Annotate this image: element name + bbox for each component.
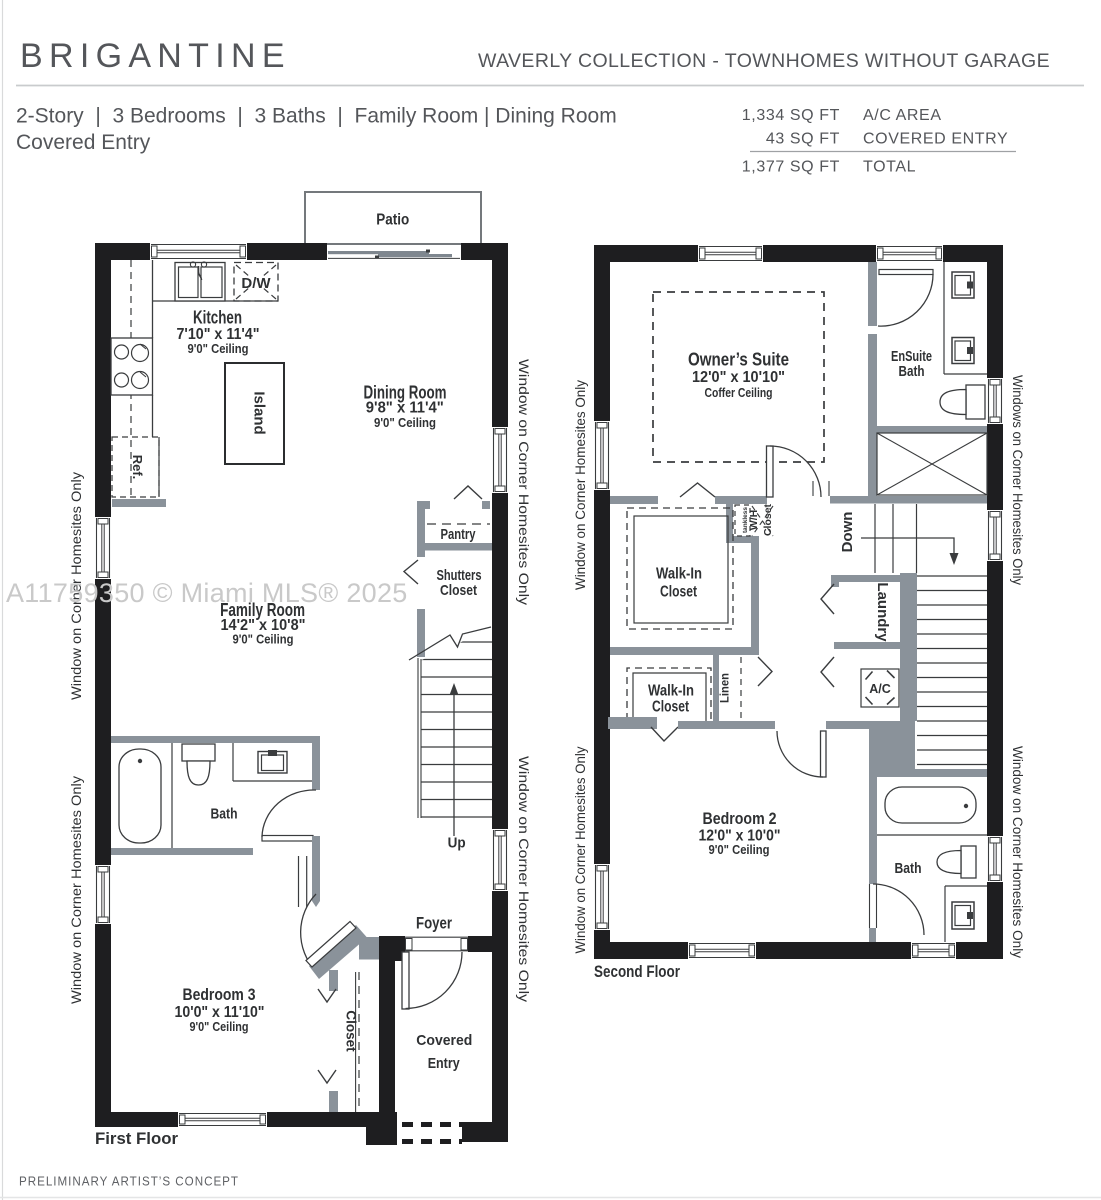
svg-text:Linen: Linen (720, 673, 732, 703)
svg-text:12'0" x 10'10": 12'0" x 10'10" (692, 369, 785, 386)
svg-text:Closet: Closet (344, 1010, 359, 1052)
svg-text:Down: Down (839, 512, 856, 553)
svg-text:A/C AREA: A/C AREA (863, 107, 942, 124)
svg-text:Bath: Bath (899, 363, 925, 380)
svg-text:Windows on Corner Homesites On: Windows on Corner Homesites Only (1010, 375, 1026, 585)
svg-text:9'0" Ceiling: 9'0" Ceiling (709, 842, 770, 857)
svg-text:Window on Corner Homesites Onl: Window on Corner Homesites Only (572, 747, 588, 954)
svg-text:TOTAL: TOTAL (863, 159, 916, 176)
svg-text:9'0" Ceiling: 9'0" Ceiling (233, 632, 294, 647)
svg-text:A/C: A/C (869, 682, 891, 696)
svg-text:Kitchen: Kitchen (193, 308, 242, 328)
svg-text:9'0" Ceiling: 9'0" Ceiling (188, 341, 249, 356)
svg-text:9'8" x 11'4": 9'8" x 11'4" (366, 400, 444, 417)
svg-text:Island: Island (251, 391, 268, 434)
svg-text:Window on Corner Homesites Onl: Window on Corner Homesites Only (68, 776, 84, 1004)
svg-text:A11759350 © Miami MLS® 2025: A11759350 © Miami MLS® 2025 (6, 578, 408, 608)
svg-text:Foyer: Foyer (416, 915, 452, 933)
svg-text:Coffer Ceiling: Coffer Ceiling (705, 385, 773, 400)
svg-text:Up: Up (448, 835, 466, 852)
svg-text:WAVERLY COLLECTION - TOWNHOMES: WAVERLY COLLECTION - TOWNHOMES WITHOUT G… (478, 50, 1050, 72)
svg-text:Closet: Closet (652, 699, 689, 716)
svg-text:1,377 SQ FT: 1,377 SQ FT (742, 159, 840, 176)
svg-text:Patio: Patio (376, 212, 409, 229)
svg-text:Closet: Closet (660, 584, 697, 601)
svg-text:Window on Corner Homesites Onl: Window on Corner Homesites Only (516, 756, 532, 1002)
svg-text:9'0" Ceiling: 9'0" Ceiling (190, 1019, 249, 1034)
svg-text:Walk-In: Walk-In (656, 566, 702, 583)
svg-text:9'0" Ceiling: 9'0" Ceiling (374, 415, 436, 430)
svg-text:Window on Corner Homesites Onl: Window on Corner Homesites Only (1010, 746, 1026, 958)
svg-text:Bedroom 2: Bedroom 2 (703, 809, 777, 828)
svg-text:Bedroom 3: Bedroom 3 (183, 985, 256, 1004)
svg-text:43 SQ FT: 43 SQ FT (766, 131, 840, 148)
svg-text:W/H: W/H (748, 510, 760, 530)
svg-text:Second Floor: Second Floor (594, 962, 680, 981)
svg-text:Window on Corner Homesites Onl: Window on Corner Homesites Only (572, 380, 588, 590)
svg-text:Owner’s Suite: Owner’s Suite (688, 350, 789, 370)
svg-text:Walk-In: Walk-In (648, 683, 694, 700)
svg-text:BRIGANTINE: BRIGANTINE (20, 37, 291, 75)
svg-text:Covered: Covered (416, 1032, 472, 1049)
svg-text:Entry: Entry (428, 1055, 461, 1072)
svg-text:Window on Corner Homesites Onl: Window on Corner Homesites Only (516, 359, 532, 605)
svg-text:Closet: Closet (762, 503, 774, 536)
svg-text:Pantry: Pantry (441, 526, 476, 543)
svg-text:Ref.: Ref. (130, 455, 145, 480)
svg-text:D/W: D/W (241, 275, 271, 292)
svg-text:COVERED ENTRY: COVERED ENTRY (863, 131, 1008, 148)
svg-text:2-Story | 3 Bedrooms | 3 B: 2-Story | 3 Bedrooms | 3 Baths | Family … (16, 105, 617, 128)
svg-text:Closet: Closet (440, 582, 477, 599)
svg-text:First Floor: First Floor (95, 1129, 178, 1148)
svg-text:Bath: Bath (895, 860, 922, 877)
svg-text:Bath: Bath (211, 806, 238, 823)
svg-text:1,334 SQ FT: 1,334 SQ FT (742, 107, 840, 124)
svg-text:Covered Entry: Covered Entry (16, 131, 151, 154)
svg-text:PRELIMINARY ARTIST’S CONCEPT: PRELIMINARY ARTIST’S CONCEPT (19, 1174, 239, 1189)
svg-text:Laundry: Laundry (874, 582, 891, 642)
